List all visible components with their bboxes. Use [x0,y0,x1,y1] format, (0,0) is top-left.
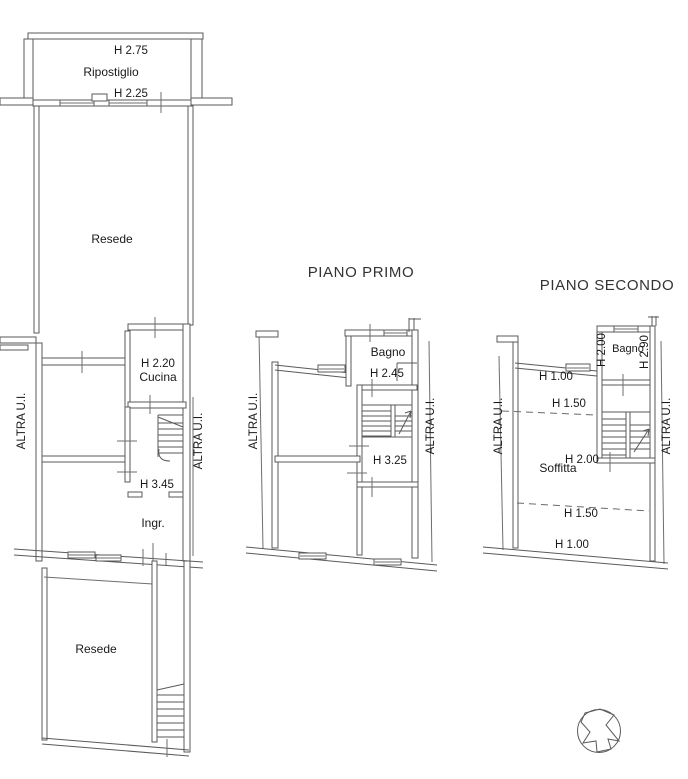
wall [513,342,518,548]
wall [42,568,47,740]
adjacent-unit-label: ALTRA U.I. [493,398,505,455]
wall [602,380,650,385]
compass-star [581,709,619,752]
wall [42,358,128,365]
wall [24,39,33,98]
wall [357,385,417,390]
room-label-soffitta: Soffitta [539,461,576,475]
room-label-cucina: Cucina [139,370,177,384]
wall [0,337,36,343]
wall [42,456,125,462]
floor-title: PIANO PRIMO [308,264,415,281]
wall [597,458,655,463]
staircase [157,684,184,737]
staircase [360,405,412,437]
adjacent-unit-label: ALTRA U.I. [425,398,437,455]
height-label: H 2.00 [596,333,608,367]
wall [183,324,190,561]
wall [272,362,278,548]
staircase-handrail [159,449,170,461]
wall [128,324,190,330]
adjacent-unit-label: ALTRA U.I. [661,398,673,455]
height-label: H 2.75 [114,45,148,57]
room-label-resede-top: Resede [91,232,133,246]
wall [188,106,193,325]
height-label: H 2.90 [639,335,651,369]
staircase [158,415,183,457]
wall [412,330,418,558]
staircase [602,412,650,458]
boundary-line [44,577,153,584]
room-label-resede-bottom: Resede [75,642,117,656]
height-label: H 1.00 [555,539,589,551]
wall [256,331,278,337]
room-label-bagno: Bagno [371,345,406,359]
adjacent-unit-label: ALTRA U.I. [248,393,260,450]
wall [128,402,186,408]
adjacent-unit-label: ALTRA U.I. [16,393,28,450]
wall [191,98,232,105]
height-label: H 3.45 [140,479,174,491]
wall [125,331,130,407]
floorplan-page: H 2.75 Ripostiglio H 2.25 Resede H 2.20 … [0,0,688,779]
wall [357,482,418,487]
first-floor-plan: PIANO PRIMO Bagno H 2.45 H [246,264,437,571]
wall [28,33,203,39]
wall [357,385,362,555]
door-jamb [169,492,183,497]
wall [34,106,39,333]
floor-title: PIANO SECONDO [540,277,675,294]
height-label: H 1.50 [552,398,586,410]
ground-floor-plan: H 2.75 Ripostiglio H 2.25 Resede H 2.20 … [0,33,232,757]
floor-plan-svg: H 2.75 Ripostiglio H 2.25 Resede H 2.20 … [0,0,688,779]
wall [125,407,130,482]
wall [346,336,351,386]
wall [497,336,518,342]
wall [0,98,33,105]
height-label: H 1.00 [539,371,573,383]
height-label: H 2.25 [114,88,148,100]
adjacent-unit-label: ALTRA U.I. [193,413,205,470]
room-label-ingresso: Ingr. [141,516,164,530]
north-arrow-icon [578,709,621,753]
room-label-ripostiglio: Ripostiglio [83,65,139,79]
wall [152,561,157,742]
door-jamb [128,492,142,497]
wall [246,547,437,571]
wall [36,343,42,561]
wall [648,316,659,326]
wall [191,39,202,98]
wall [0,345,28,350]
height-label: H 1.50 [564,508,598,520]
wall [184,561,190,752]
second-floor-plan: PIANO SECONDO Bagno H 2.00 H 2.90 H 1.00… [483,277,674,569]
height-label: H 3.25 [373,455,407,467]
height-label: H 2.45 [370,368,404,380]
height-label: H 2.20 [141,358,175,370]
door-symbol [92,94,107,101]
wall [275,456,360,462]
